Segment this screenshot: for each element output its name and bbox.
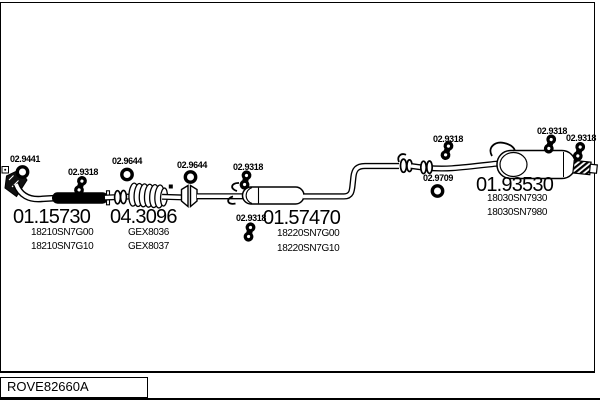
fitting-label: 02.9318 bbox=[233, 162, 263, 172]
clamp-icon bbox=[572, 141, 586, 162]
tail-pipe bbox=[573, 160, 598, 175]
part-oem-ref: GEX8036 bbox=[128, 227, 169, 238]
part-oem-ref: 18030SN7980 bbox=[487, 207, 547, 218]
gasket-ring-icon bbox=[122, 169, 132, 179]
fitting-label: 02.9644 bbox=[177, 160, 207, 170]
fitting-label: 02.9318 bbox=[537, 126, 567, 136]
intermediate-pipe-s-bend bbox=[303, 166, 399, 196]
exhaust-parts-diagram-page: 02.9441 02.9318 02.9644 02.9644 02.9318 … bbox=[0, 0, 600, 400]
clamp-icon bbox=[243, 221, 257, 242]
fitting-label: 02.9318 bbox=[68, 167, 98, 177]
part-code-front-pipe: 01.15730 bbox=[13, 206, 90, 229]
gasket-ring-icon bbox=[17, 167, 27, 177]
part-oem-ref: 18220SN7G00 bbox=[277, 228, 339, 239]
fitting-label: 02.9644 bbox=[112, 156, 142, 166]
fitting-label: 02.9441 bbox=[10, 154, 40, 164]
part-oem-ref: 18210SN7G00 bbox=[31, 227, 93, 238]
reference-code: ROVE82660A bbox=[7, 379, 89, 394]
part-oem-ref: GEX8037 bbox=[128, 241, 169, 252]
cat-outlet-flange bbox=[162, 186, 197, 207]
part-oem-ref: 18030SN7930 bbox=[487, 193, 547, 204]
part-code-catalytic: 04.3096 bbox=[110, 206, 177, 229]
fitting-label: 02.9318 bbox=[433, 134, 463, 144]
fitting-label: 02.9709 bbox=[423, 173, 453, 183]
part-oem-ref: 18210SN7G10 bbox=[31, 241, 93, 252]
rear-pipe-joint bbox=[398, 154, 412, 172]
fitting-label: 02.9318 bbox=[236, 213, 266, 223]
gasket-ring-icon bbox=[185, 172, 195, 182]
cat-mount-tab bbox=[169, 185, 173, 189]
reference-code-box: ROVE82660A bbox=[0, 377, 148, 398]
part-code-centre-silencer: 01.57470 bbox=[263, 207, 340, 230]
centre-silencer-body bbox=[243, 187, 305, 204]
rear-connecting-pipe bbox=[411, 161, 498, 174]
part-oem-ref: 18220SN7G10 bbox=[277, 243, 339, 254]
fitting-label: 02.9318 bbox=[566, 133, 596, 143]
gasket-ring-icon bbox=[432, 186, 442, 196]
